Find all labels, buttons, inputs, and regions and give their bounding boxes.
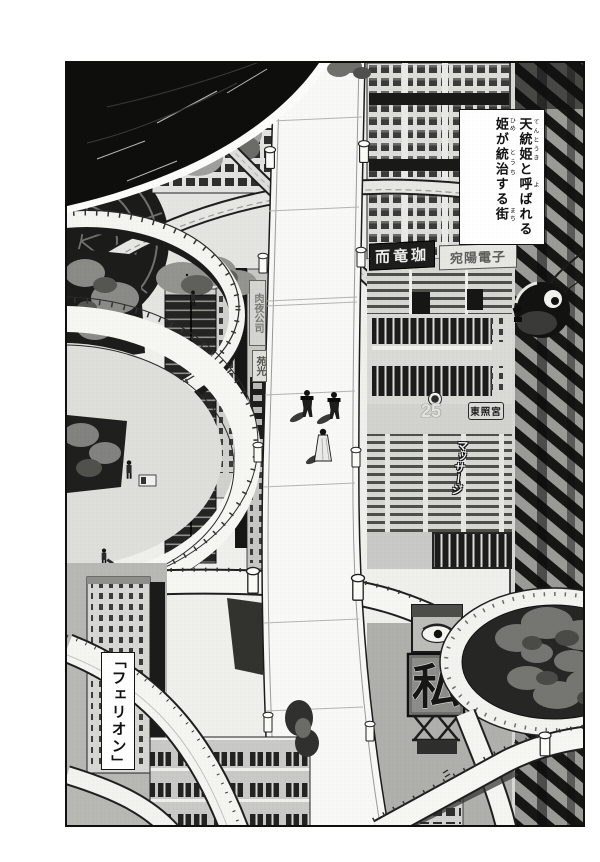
caption-box-ferion: 「フェリオン」 xyxy=(101,652,135,770)
enko-vertical-sign: 苑光 xyxy=(252,350,267,382)
manga-page: 私 xyxy=(0,0,600,862)
manga-panel: 私 xyxy=(65,61,585,827)
building-number-25: 25 xyxy=(415,399,447,423)
narration-line-1: 天統姫てんとうきと呼よばれる xyxy=(514,117,538,237)
narration-box: 天統姫てんとうきと呼よばれる 姫ひめが統治とうちする街まち xyxy=(459,109,545,245)
company-vertical-sign: 肉夜公司 xyxy=(249,280,266,346)
electronics-building-sign: 宛陽電子 xyxy=(439,243,517,271)
narration-line-2: 姫ひめが統治とうちする街まち xyxy=(491,117,515,237)
toshogu-sign: 東照宮 xyxy=(468,402,504,420)
dragon-building-sign: 而竜珈 xyxy=(369,240,435,270)
